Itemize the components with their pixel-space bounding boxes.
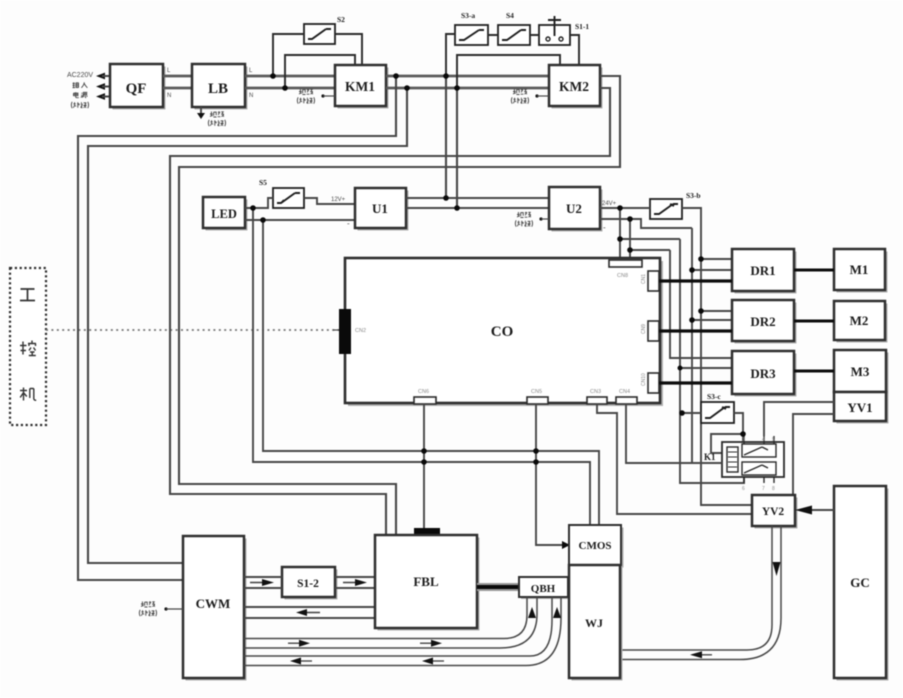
svg-text:CN10: CN10 [641,373,647,386]
svg-text:4: 4 [762,437,765,443]
svg-text:-: - [347,219,350,228]
svg-text:K1: K1 [704,452,716,462]
svg-text:CN6: CN6 [418,389,429,395]
svg-text:LED: LED [211,207,237,221]
svg-text:5: 5 [772,437,775,443]
svg-text:YV1: YV1 [847,400,872,415]
svg-text:DR3: DR3 [750,366,776,381]
svg-text:8: 8 [772,486,775,492]
svg-text:M1: M1 [850,262,869,277]
svg-text:LB: LB [208,81,228,97]
svg-text:S5: S5 [259,178,267,187]
svg-text:U1: U1 [372,201,388,216]
svg-text:6: 6 [742,486,745,492]
svg-text:M2: M2 [850,313,869,328]
svg-text:KM1: KM1 [345,79,375,94]
svg-text:S4: S4 [506,11,514,20]
svg-text:U2: U2 [566,201,582,216]
svg-text:S2: S2 [337,15,345,24]
svg-text:N: N [167,93,171,99]
svg-text:DR2: DR2 [750,314,775,329]
svg-text:CN4: CN4 [619,389,630,395]
svg-text:CN1: CN1 [641,274,647,284]
svg-text:QF: QF [126,81,147,97]
svg-text:L: L [167,68,171,74]
svg-text:3: 3 [742,437,745,443]
svg-text:AC220V: AC220V [67,72,93,79]
svg-text:S3-a: S3-a [461,11,475,20]
svg-text:S1-2: S1-2 [297,578,319,590]
svg-text:-: - [603,223,606,232]
svg-text:7: 7 [762,486,765,492]
svg-text:GC: GC [850,575,870,590]
svg-text:S3-b: S3-b [686,191,701,200]
svg-text:L: L [249,68,253,74]
svg-text:QBH: QBH [531,583,556,595]
svg-text:YV2: YV2 [762,506,785,518]
svg-text:WJ: WJ [585,616,603,630]
svg-text:CO: CO [491,324,514,340]
svg-text:M3: M3 [851,364,870,379]
svg-text:N: N [249,93,253,99]
svg-text:CN2: CN2 [355,328,366,334]
svg-text:CMOS: CMOS [579,540,612,552]
svg-text:KM2: KM2 [559,79,589,94]
svg-text:CWM: CWM [196,596,231,611]
svg-text:S3-c: S3-c [707,392,721,401]
svg-text:CN8: CN8 [617,273,628,279]
svg-text:CN3: CN3 [590,389,601,395]
svg-text:CN9: CN9 [641,324,647,334]
svg-text:FBL: FBL [413,574,439,589]
svg-text:DR1: DR1 [750,263,775,278]
svg-text:CN5: CN5 [531,389,542,395]
svg-text:S1-1: S1-1 [575,22,589,31]
svg-text:24V+: 24V+ [602,201,617,207]
svg-text:12V+: 12V+ [331,197,346,203]
